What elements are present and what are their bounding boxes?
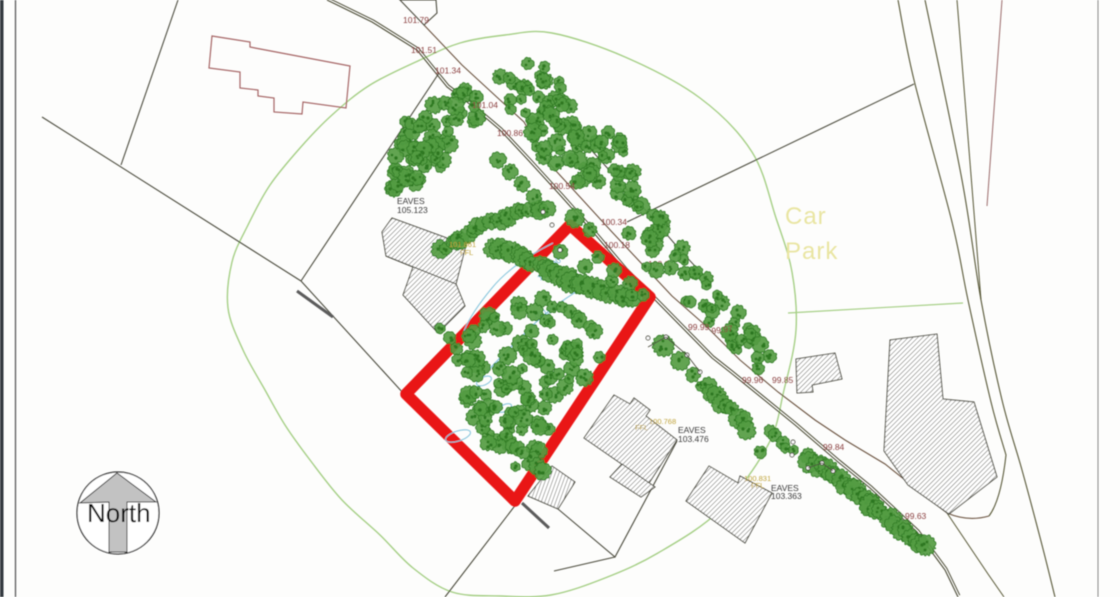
svg-text:101.34: 101.34 [435, 66, 461, 76]
svg-text:101.51: 101.51 [411, 45, 437, 55]
svg-text:99.84: 99.84 [823, 442, 845, 452]
svg-text:99.85: 99.85 [772, 375, 794, 385]
svg-text:103.363: 103.363 [771, 491, 802, 501]
svg-text:101.79: 101.79 [403, 15, 429, 25]
svg-text:99.99: 99.99 [688, 322, 710, 332]
svg-text:100.34: 100.34 [601, 217, 627, 227]
svg-text:North: North [87, 498, 151, 528]
svg-text:Park: Park [785, 238, 838, 265]
svg-text:100.54: 100.54 [549, 181, 575, 191]
svg-text:100.768: 100.768 [649, 417, 676, 426]
svg-text:99.63: 99.63 [905, 511, 927, 521]
svg-text:Car: Car [785, 203, 827, 230]
svg-text:99.96: 99.96 [742, 375, 764, 385]
svg-text:FFL: FFL [460, 248, 473, 257]
svg-text:100.86: 100.86 [497, 128, 523, 138]
svg-text:FFL: FFL [635, 423, 648, 432]
svg-text:FFL: FFL [751, 481, 764, 490]
svg-text:100.18: 100.18 [604, 240, 630, 250]
svg-text:101.04: 101.04 [472, 100, 498, 110]
svg-text:105.123: 105.123 [397, 205, 428, 215]
svg-text:103.476: 103.476 [678, 434, 709, 444]
